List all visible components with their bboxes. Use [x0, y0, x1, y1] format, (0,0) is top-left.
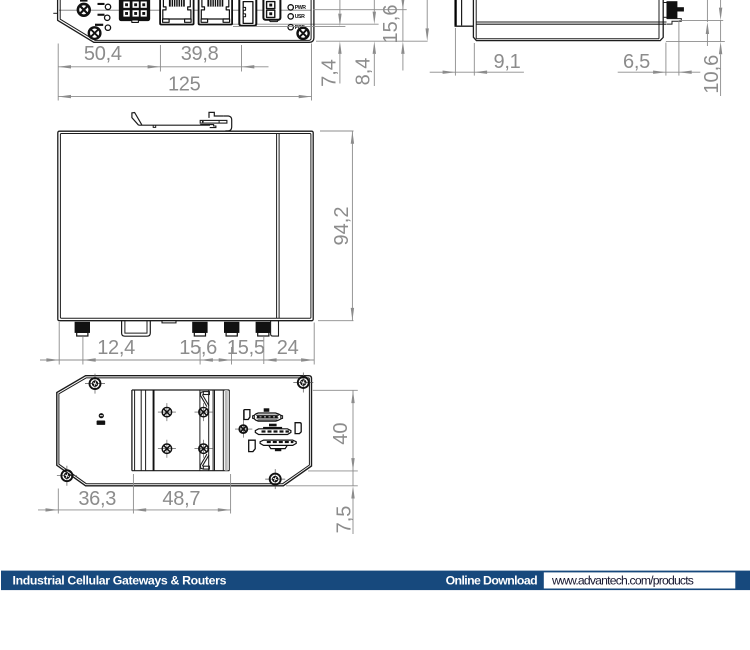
svg-text:Industrial Cellular Gateways &: Industrial Cellular Gateways & Routers: [13, 574, 227, 588]
svg-text:94,2: 94,2: [331, 207, 353, 246]
svg-text:USR: USR: [295, 14, 305, 20]
svg-text:PWR: PWR: [295, 5, 307, 11]
svg-text:Online Download: Online Download: [446, 574, 538, 588]
svg-text:15,6: 15,6: [380, 5, 402, 44]
svg-text:7,5: 7,5: [333, 506, 355, 534]
svg-text:12,4: 12,4: [97, 337, 135, 359]
svg-text:50,4: 50,4: [84, 43, 122, 65]
svg-text:36,3: 36,3: [78, 488, 116, 510]
svg-text:15,5: 15,5: [227, 337, 265, 359]
svg-text:www.advantech.com/products: www.advantech.com/products: [551, 574, 694, 588]
svg-text:39,8: 39,8: [181, 43, 219, 65]
svg-text:24: 24: [277, 337, 299, 359]
svg-text:9,1: 9,1: [494, 51, 521, 73]
svg-text:48,7: 48,7: [162, 488, 200, 510]
svg-text:15,6: 15,6: [179, 337, 217, 359]
svg-text:8,4: 8,4: [353, 58, 375, 86]
svg-text:7,4: 7,4: [319, 59, 341, 87]
svg-text:10,6: 10,6: [701, 55, 723, 94]
svg-text:6,5: 6,5: [623, 51, 650, 73]
svg-text:40: 40: [330, 422, 352, 444]
svg-text:125: 125: [168, 74, 201, 96]
